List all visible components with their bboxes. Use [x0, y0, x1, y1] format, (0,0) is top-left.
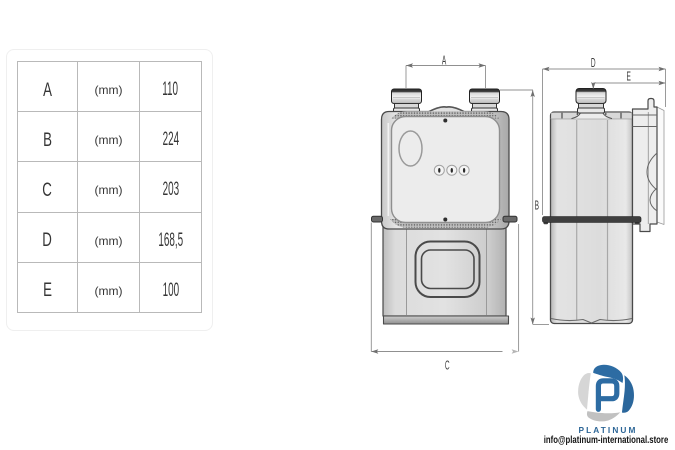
svg-text:C: C	[445, 359, 450, 373]
svg-text:A: A	[442, 54, 447, 68]
svg-text:B: B	[535, 200, 540, 214]
svg-text:E: E	[627, 71, 632, 85]
svg-text:D: D	[591, 57, 596, 71]
